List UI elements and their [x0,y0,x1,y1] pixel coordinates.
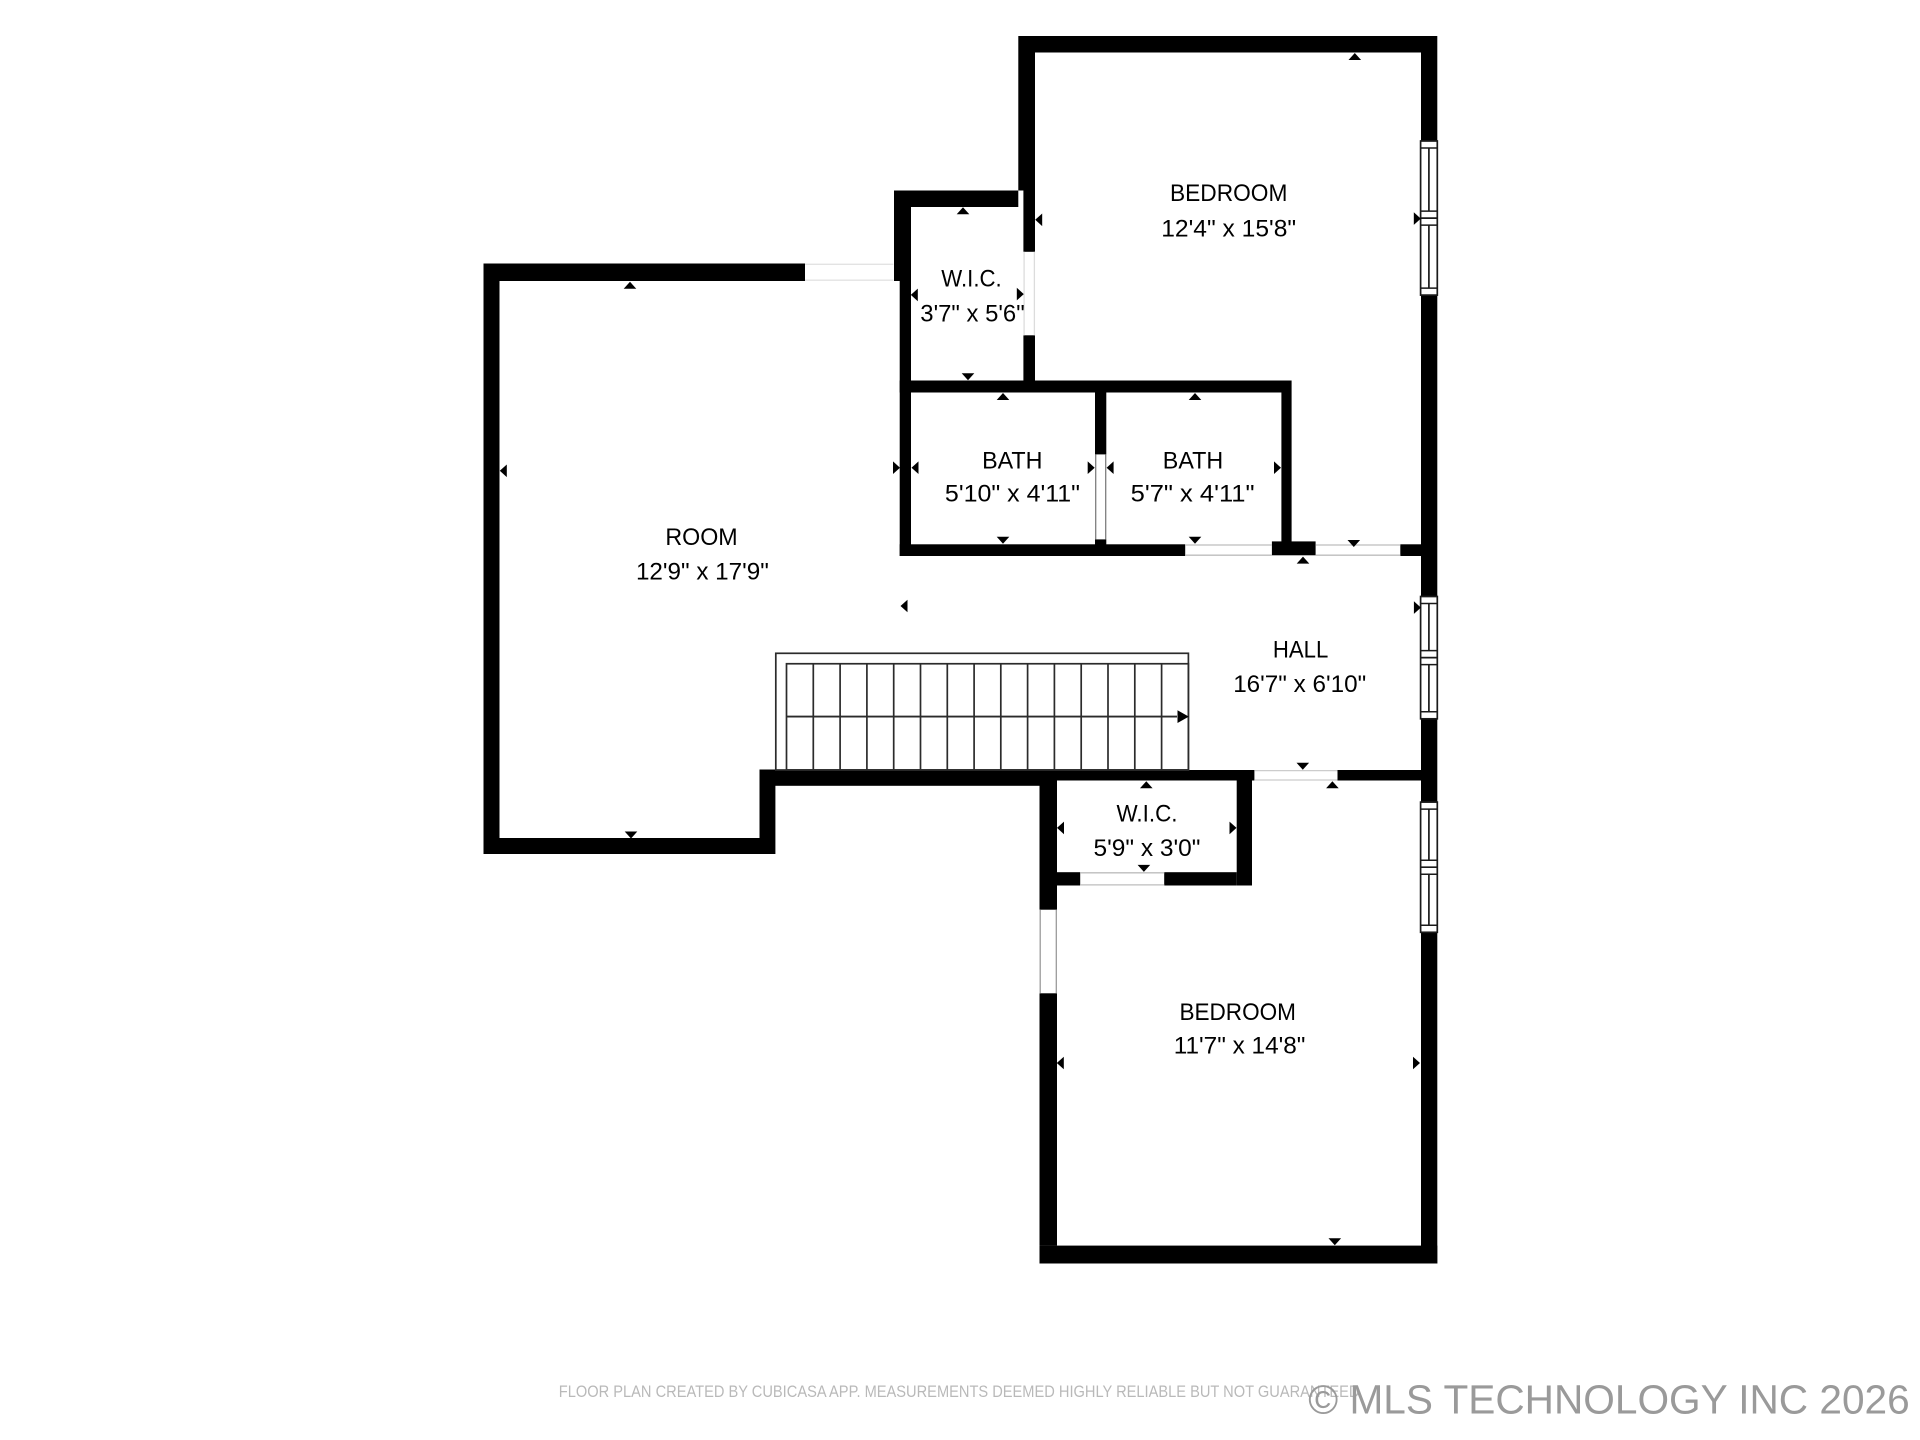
svg-text:BEDROOM: BEDROOM [1179,999,1296,1026]
svg-text:FLOOR PLAN CREATED BY CUBICASA: FLOOR PLAN CREATED BY CUBICASA APP. MEAS… [559,1382,1360,1401]
svg-text:11'7" x 14'8": 11'7" x 14'8" [1174,1032,1306,1059]
svg-text:5'7" x 4'11": 5'7" x 4'11" [1131,481,1255,508]
svg-text:W.I.C.: W.I.C. [1117,800,1178,827]
svg-text:W.I.C.: W.I.C. [941,266,1001,293]
svg-text:BEDROOM: BEDROOM [1170,180,1287,207]
svg-text:BATH: BATH [1163,448,1223,475]
svg-text:12'9" x 17'9": 12'9" x 17'9" [636,558,769,585]
svg-text:16'7" x 6'10": 16'7" x 6'10" [1233,671,1366,698]
svg-text:12'4" x 15'8": 12'4" x 15'8" [1161,215,1296,242]
svg-text:5'9" x 3'0": 5'9" x 3'0" [1094,835,1201,862]
svg-text:© MLS TECHNOLOGY INC 2026: © MLS TECHNOLOGY INC 2026 [1308,1377,1909,1423]
svg-text:BATH: BATH [982,448,1042,475]
svg-text:ROOM: ROOM [665,524,737,551]
svg-text:HALL: HALL [1273,636,1328,663]
svg-text:5'10" x 4'11": 5'10" x 4'11" [945,481,1080,508]
svg-text:3'7" x 5'6": 3'7" x 5'6" [920,300,1024,327]
